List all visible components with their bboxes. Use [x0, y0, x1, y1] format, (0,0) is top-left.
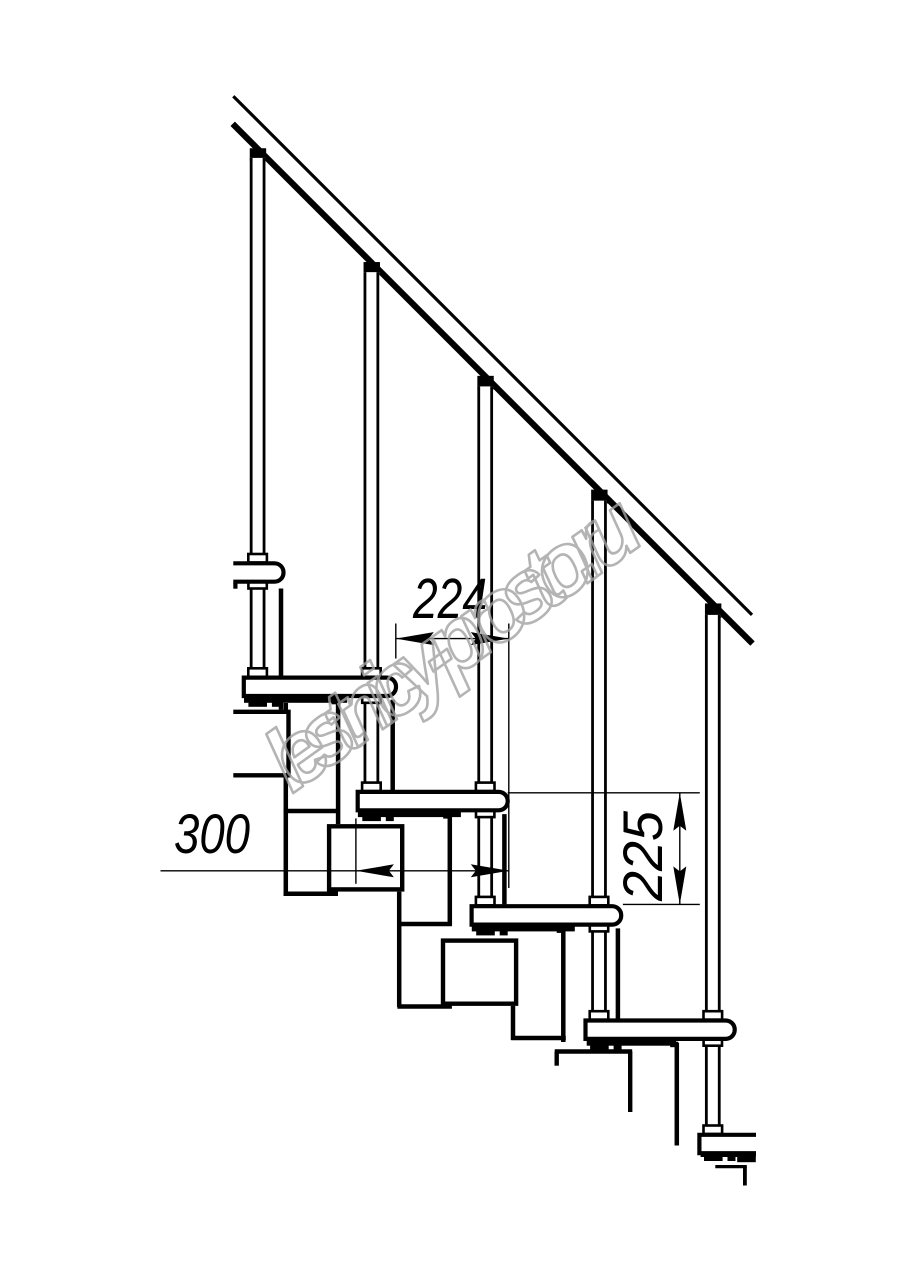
- svg-text:225: 225: [611, 810, 674, 902]
- svg-text:300: 300: [174, 802, 250, 865]
